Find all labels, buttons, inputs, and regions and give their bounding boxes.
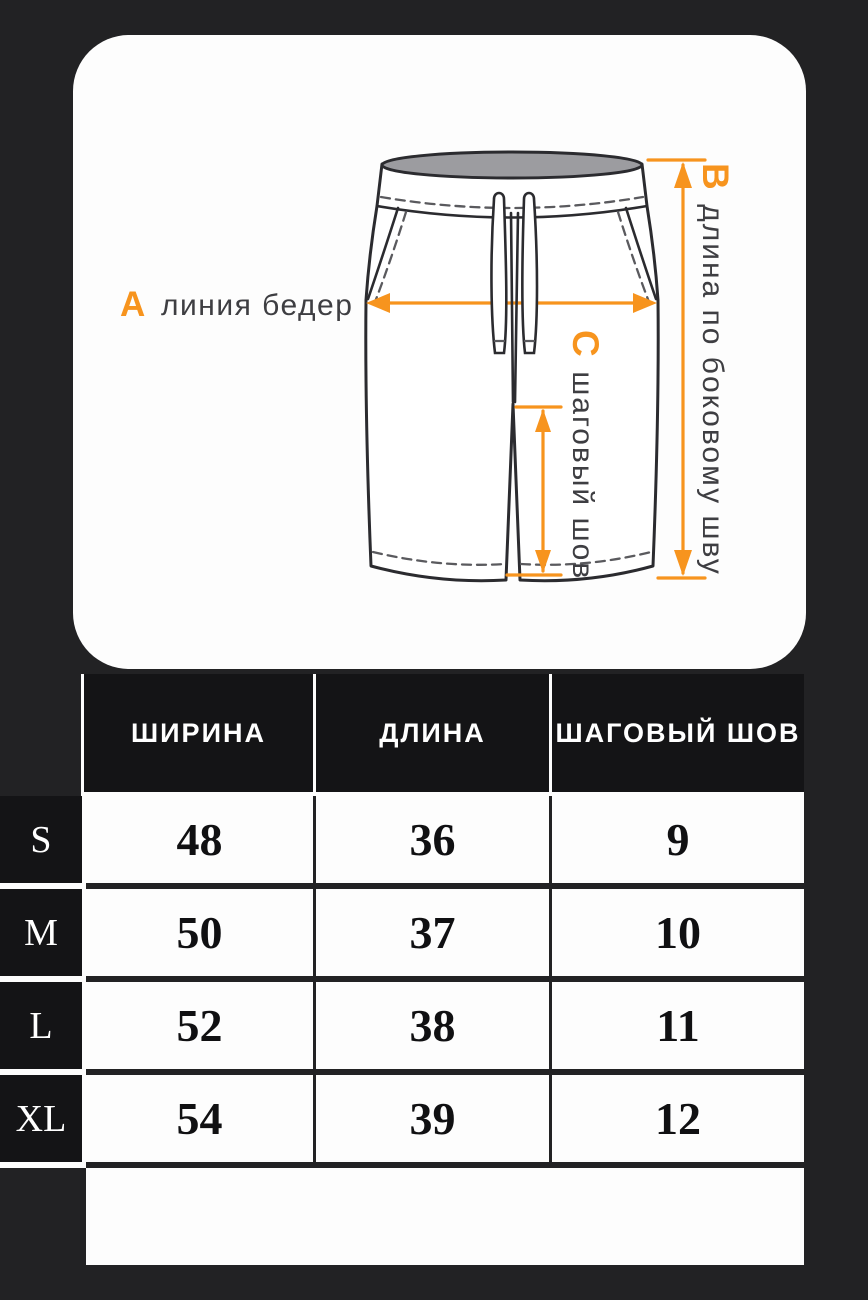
label-b: В длина по боковому шву (695, 163, 736, 576)
value-cell: 10 (552, 889, 804, 976)
grid-line (0, 976, 86, 982)
shorts-size-diagram: А линия бедер В длина по боковому шву С … (73, 35, 806, 669)
value-cell: 12 (552, 1075, 804, 1162)
value-cell: 52 (86, 982, 313, 1069)
column-header-inseam: ШАГОВЫЙ ШОВ (552, 674, 804, 792)
waistband-top (382, 152, 642, 178)
value-cell: 50 (86, 889, 313, 976)
value-cell: 39 (316, 1075, 549, 1162)
svg-text:В длина по боковому: В длина по боковому шву (695, 163, 736, 576)
column-header-width: ШИРИНА (84, 674, 313, 792)
grid-line (0, 1162, 86, 1168)
table-footer (86, 1168, 804, 1265)
diagram-card: А линия бедер В длина по боковому шву С … (73, 35, 806, 669)
size-label-cell: XL (0, 1075, 82, 1162)
drawstring-right (522, 193, 537, 353)
size-label-cell: S (0, 796, 82, 883)
value-cell: 54 (86, 1075, 313, 1162)
column-header-length: ДЛИНА (316, 674, 549, 792)
shorts-drawing (366, 152, 658, 581)
drawstring-left (491, 193, 506, 353)
grid-line (0, 1069, 86, 1075)
size-label-cell: L (0, 982, 82, 1069)
value-cell: 48 (86, 796, 313, 883)
label-a: А линия бедер (120, 285, 353, 324)
size-label-cell: M (0, 889, 82, 976)
grid-line (0, 883, 86, 889)
value-cell: 36 (316, 796, 549, 883)
svg-text:линия бедер: линия бедер (161, 289, 353, 322)
value-cell: 37 (316, 889, 549, 976)
svg-text:А: А (120, 285, 145, 324)
size-chart-infographic: А линия бедер В длина по боковому шву С … (0, 0, 868, 1300)
value-cell: 9 (552, 796, 804, 883)
value-cell: 38 (316, 982, 549, 1069)
value-cell: 11 (552, 982, 804, 1069)
